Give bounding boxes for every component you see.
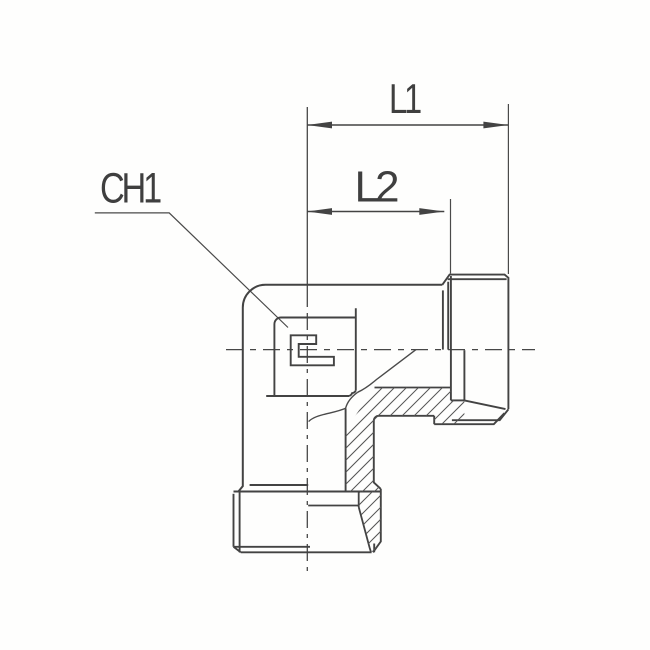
svg-text:L1: L1 — [389, 75, 421, 122]
svg-text:L2: L2 — [355, 164, 398, 212]
svg-text:CH1: CH1 — [100, 165, 161, 213]
